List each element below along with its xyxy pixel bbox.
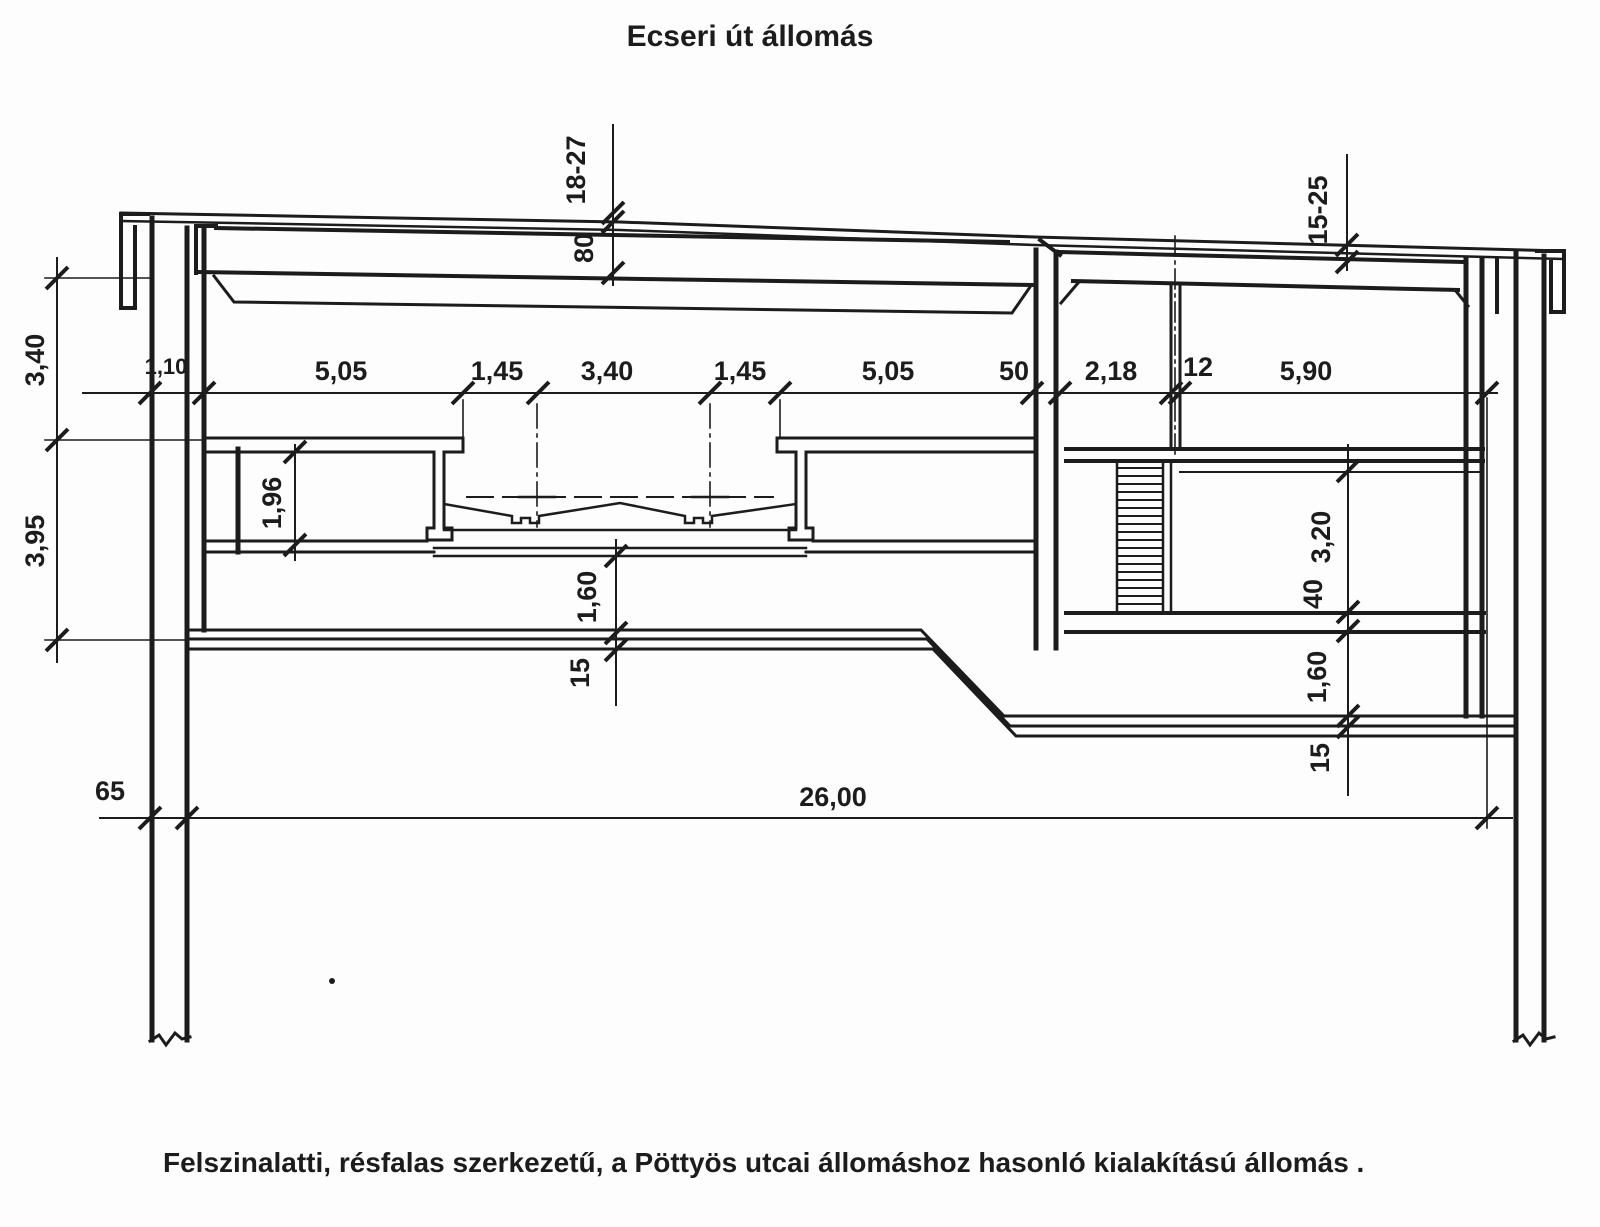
dim-label-right-room-height: 3,20: [1306, 511, 1336, 564]
dim-label-platform-left: 5,05: [315, 356, 368, 386]
dim-label-platform-right: 5,05: [862, 356, 915, 386]
dim-label-partition: 12: [1183, 352, 1213, 382]
station-cross-section-drawing: Ecseri út állomás: [0, 0, 1600, 1227]
dim-label-left-lower-height: 3,95: [20, 515, 50, 568]
staircase: [1117, 462, 1171, 612]
track-formation-profile: [444, 503, 796, 523]
dim-label-top-cover: 18-27: [561, 135, 591, 204]
track-bed: [434, 497, 806, 556]
drawing-caption: Felszinalatti, résfalas szerkezetű, a Pö…: [163, 1147, 1364, 1178]
dim-label-total-width: 26,00: [799, 782, 867, 812]
dim-label-roof-slab: 80: [569, 233, 599, 263]
dim-label-stair-bay: 2,18: [1085, 356, 1138, 386]
dim-label-diaphragm-wall-width: 65: [95, 776, 125, 806]
track-centerlines: [519, 404, 728, 527]
right-inner-wall: [1466, 260, 1482, 716]
drawing-title: Ecseri út állomás: [627, 20, 874, 53]
mid-dividing-wall: [1036, 250, 1056, 648]
right-platform-slab: [777, 438, 1032, 540]
dim-label-mid-wall: 50: [999, 356, 1029, 386]
dim-label-right-hall: 5,90: [1280, 356, 1333, 386]
dim-label-right-base-slab: 15: [1305, 743, 1335, 773]
dim-label-track-gap-left: 1,45: [471, 356, 524, 386]
right-under-platform-floor: [806, 541, 1032, 552]
dim-label-right-floor-slab: 40: [1298, 579, 1328, 609]
left-under-platform-floor: [208, 541, 434, 552]
left-diaphragm-wall: [150, 218, 190, 1045]
left-platform-slab: [208, 438, 463, 540]
dim-label-left-upper-height: 3,40: [20, 334, 50, 387]
ink-dot: [329, 978, 335, 984]
left-wall-break-mark: [150, 1033, 190, 1045]
right-room-floor-slab: [1066, 613, 1484, 632]
dim-label-center-base-gap: 1,60: [572, 571, 602, 624]
partition-wall-12: [1171, 236, 1180, 455]
dim-label-right-base-gap: 1,60: [1302, 651, 1332, 704]
left-lining-wall: [204, 228, 238, 630]
dim-label-track-center: 3,40: [581, 356, 634, 386]
dim-label-under-platform-height: 1,96: [257, 477, 287, 530]
left-surface-curb: [121, 214, 148, 308]
dim-label-wall-lining: 1,10: [145, 354, 188, 379]
dim-label-center-base-slab: 15: [565, 658, 595, 688]
right-wall-break-mark: [1514, 1033, 1554, 1045]
right-diaphragm-wall: [1497, 252, 1554, 1045]
dim-label-right-cover: 15-25: [1303, 175, 1333, 244]
drawing-sheet: Ecseri út állomás: [0, 0, 1600, 1227]
stair-steps-hatching: [1117, 468, 1163, 604]
dim-label-track-gap-right: 1,45: [714, 356, 767, 386]
